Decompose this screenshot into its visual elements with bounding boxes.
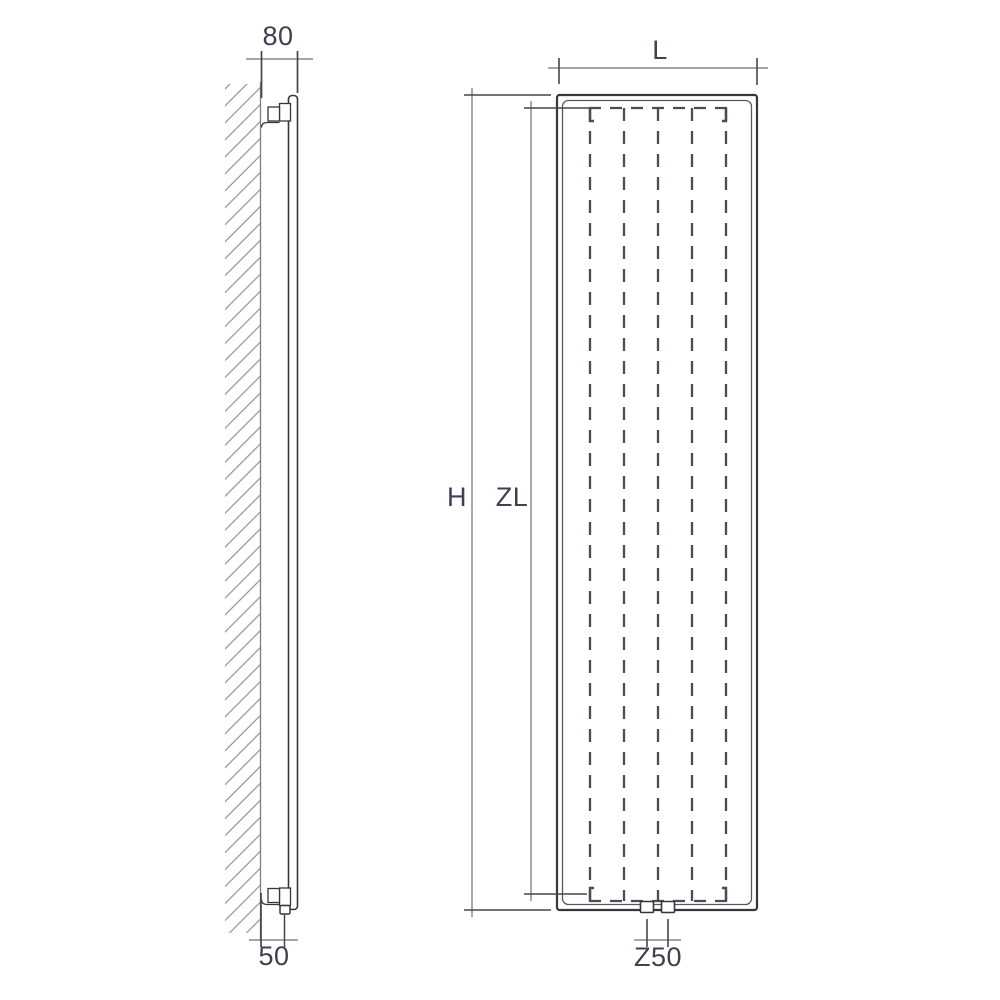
dim-label-H: H xyxy=(447,482,467,512)
dim-label-L: L xyxy=(652,35,668,65)
front-view: L H ZL Z50 xyxy=(447,35,768,972)
pipe-connection-right xyxy=(662,902,675,913)
bottom-wall-bracket xyxy=(262,888,291,914)
hidden-corner-top-right xyxy=(722,108,726,121)
wall-hatch xyxy=(225,84,260,933)
dim-label-50: 50 xyxy=(258,941,289,971)
bottom-pipe-stub-side xyxy=(280,906,290,915)
side-view: 80 50 xyxy=(225,21,313,971)
radiator-dimension-drawing: 80 50 xyxy=(0,0,1000,1000)
dimension-element-height-ZL: ZL xyxy=(496,101,589,901)
bottom-bracket-body xyxy=(280,888,291,906)
dim-label-80: 80 xyxy=(262,21,293,51)
dimension-connection-Z50: Z50 xyxy=(634,919,682,972)
pipe-connection-left xyxy=(641,902,654,913)
dim-label-Z50: Z50 xyxy=(634,942,682,972)
hidden-corner-top-left xyxy=(590,108,594,121)
dim-label-ZL: ZL xyxy=(496,482,529,512)
dimension-width-L: L xyxy=(548,35,768,85)
top-wall-bracket xyxy=(262,104,291,128)
technical-drawing-page: 80 50 xyxy=(0,0,1000,1000)
top-bracket-hook xyxy=(262,123,280,128)
radiator-panel-side xyxy=(289,96,298,910)
hidden-corner-bottom-left xyxy=(590,888,594,901)
hidden-convector-element xyxy=(589,108,727,901)
top-bracket-clip xyxy=(268,107,280,121)
bottom-bracket-clip xyxy=(268,889,280,903)
hidden-corner-bottom-right xyxy=(722,888,726,901)
top-bracket-body xyxy=(280,104,291,122)
